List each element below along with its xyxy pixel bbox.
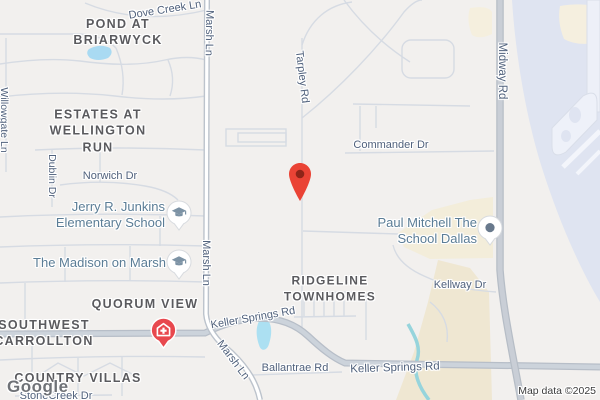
map-attribution: Map data ©2025	[518, 385, 596, 397]
poi-label-junkins-elementary[interactable]: Jerry R. Junkins Elementary School	[56, 199, 165, 232]
generic-poi-icon[interactable]	[477, 215, 503, 251]
graduation-cap-icon	[166, 200, 192, 231]
red-pin-icon	[288, 162, 312, 202]
school-poi-icon[interactable]	[166, 249, 192, 285]
street-label-marsh-ln-mid: Marsh Ln	[200, 240, 212, 286]
map-marker[interactable]	[288, 162, 312, 207]
street-label-marsh-ln-top: Marsh Ln	[203, 10, 216, 56]
commercial-area	[468, 7, 492, 37]
school-poi-icon[interactable]	[166, 200, 192, 236]
poi-label-paul-mitchell-school[interactable]: Paul Mitchell The School Dallas	[378, 215, 477, 248]
graduation-cap-icon	[166, 249, 192, 280]
poi-label-madison-on-marsh[interactable]: The Madison on Marsh	[33, 255, 166, 271]
area-label-southwest-carrollton: SOUTHWEST CARROLLTON	[0, 317, 94, 350]
street-label-dublin-dr: Dublin Dr	[46, 154, 58, 198]
hospital-cross-icon	[150, 317, 177, 349]
street-label-commander-dr: Commander Dr	[353, 139, 428, 151]
street-label-ballantrae-rd: Ballantrae Rd	[262, 362, 329, 374]
poi-dot-icon	[477, 215, 503, 246]
area-label-ridgeline-townhomes: RIDGELINE TOWNHOMES	[284, 273, 376, 304]
street-label-kellway-dr: Kellway Dr	[434, 279, 487, 291]
area-label-quorum-view: QUORUM VIEW	[92, 296, 199, 312]
google-logo[interactable]: Google	[7, 377, 69, 397]
street-label-willowgate-ln: Willowgate Ln	[0, 87, 10, 152]
street-label-norwich-dr: Norwich Dr	[83, 170, 137, 182]
street-label-midway-rd: Midway Rd	[496, 43, 508, 100]
map-canvas[interactable]: Dove Creek Ln Marsh Ln Willowgate Ln Dub…	[0, 0, 600, 400]
area-label-pond-at-briarwyck: POND AT BRIARWYCK	[73, 16, 162, 49]
area-label-estates-at-wellington-run: ESTATES AT WELLINGTON RUN	[50, 107, 147, 156]
hospital-poi-icon[interactable]	[150, 317, 177, 354]
